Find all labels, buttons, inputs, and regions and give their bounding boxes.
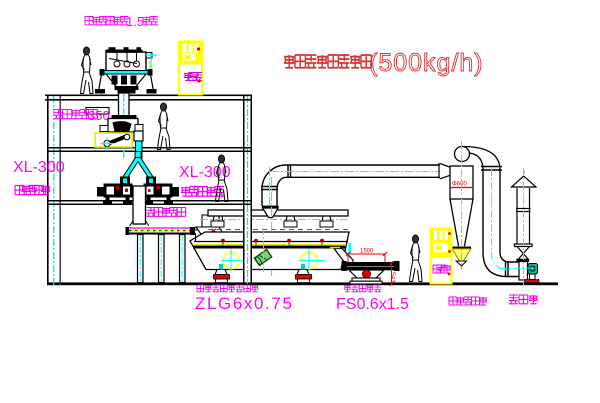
svg-text:1.5: 1.5 — [126, 14, 144, 29]
svg-text:350: 350 — [88, 108, 110, 123]
svg-text:1500: 1500 — [360, 249, 374, 255]
svg-text:XL-300: XL-300 — [179, 164, 231, 181]
svg-text:Φ600: Φ600 — [452, 182, 467, 188]
svg-text:XL-300: XL-300 — [13, 159, 65, 176]
svg-text:(500kg/h): (500kg/h) — [369, 49, 484, 77]
svg-text:ZLG6x0.75: ZLG6x0.75 — [195, 294, 294, 313]
svg-text:FS0.6x1.5: FS0.6x1.5 — [336, 296, 409, 313]
svg-text:541: 541 — [389, 272, 396, 283]
